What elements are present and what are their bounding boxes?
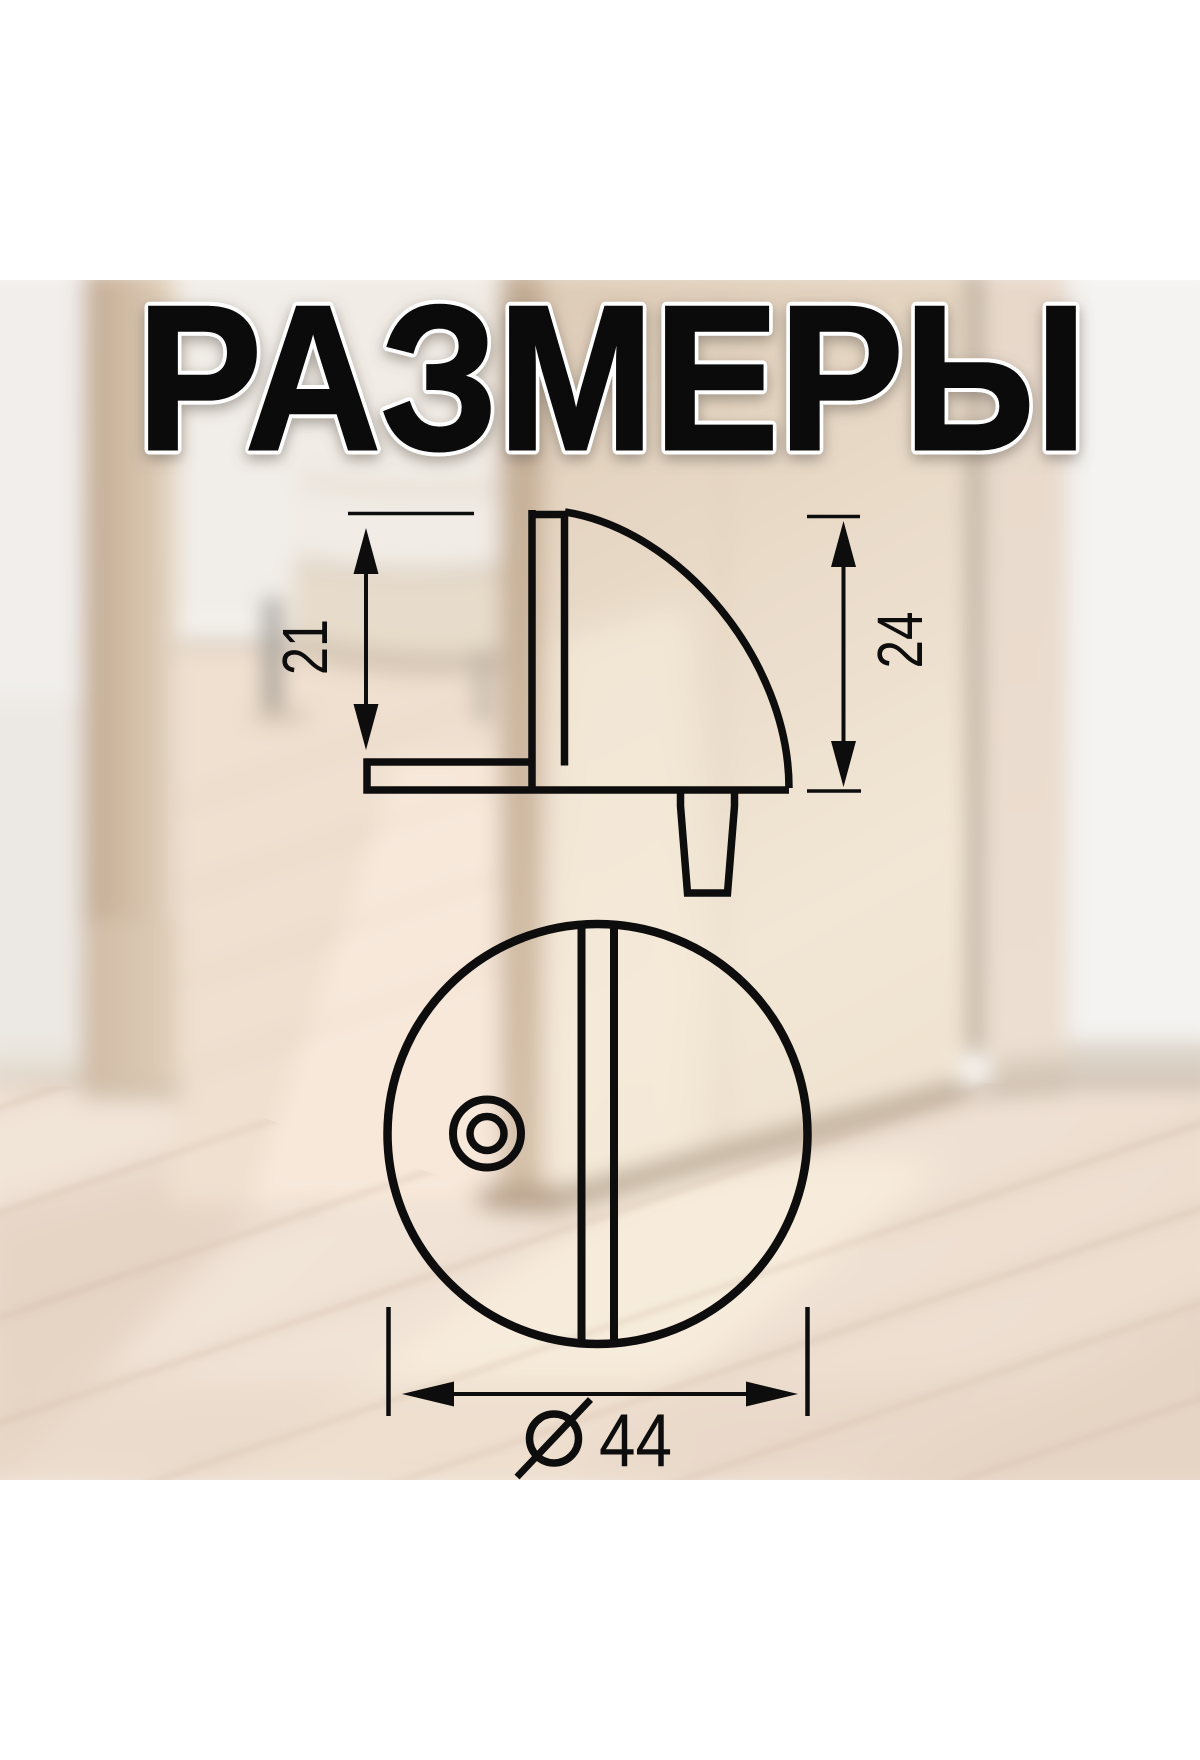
svg-text:21: 21 <box>269 619 341 675</box>
svg-text:РАЗМЕРЫ: РАЗМЕРЫ <box>137 263 1087 493</box>
svg-text:44: 44 <box>599 1398 672 1482</box>
svg-text:24: 24 <box>864 612 936 669</box>
